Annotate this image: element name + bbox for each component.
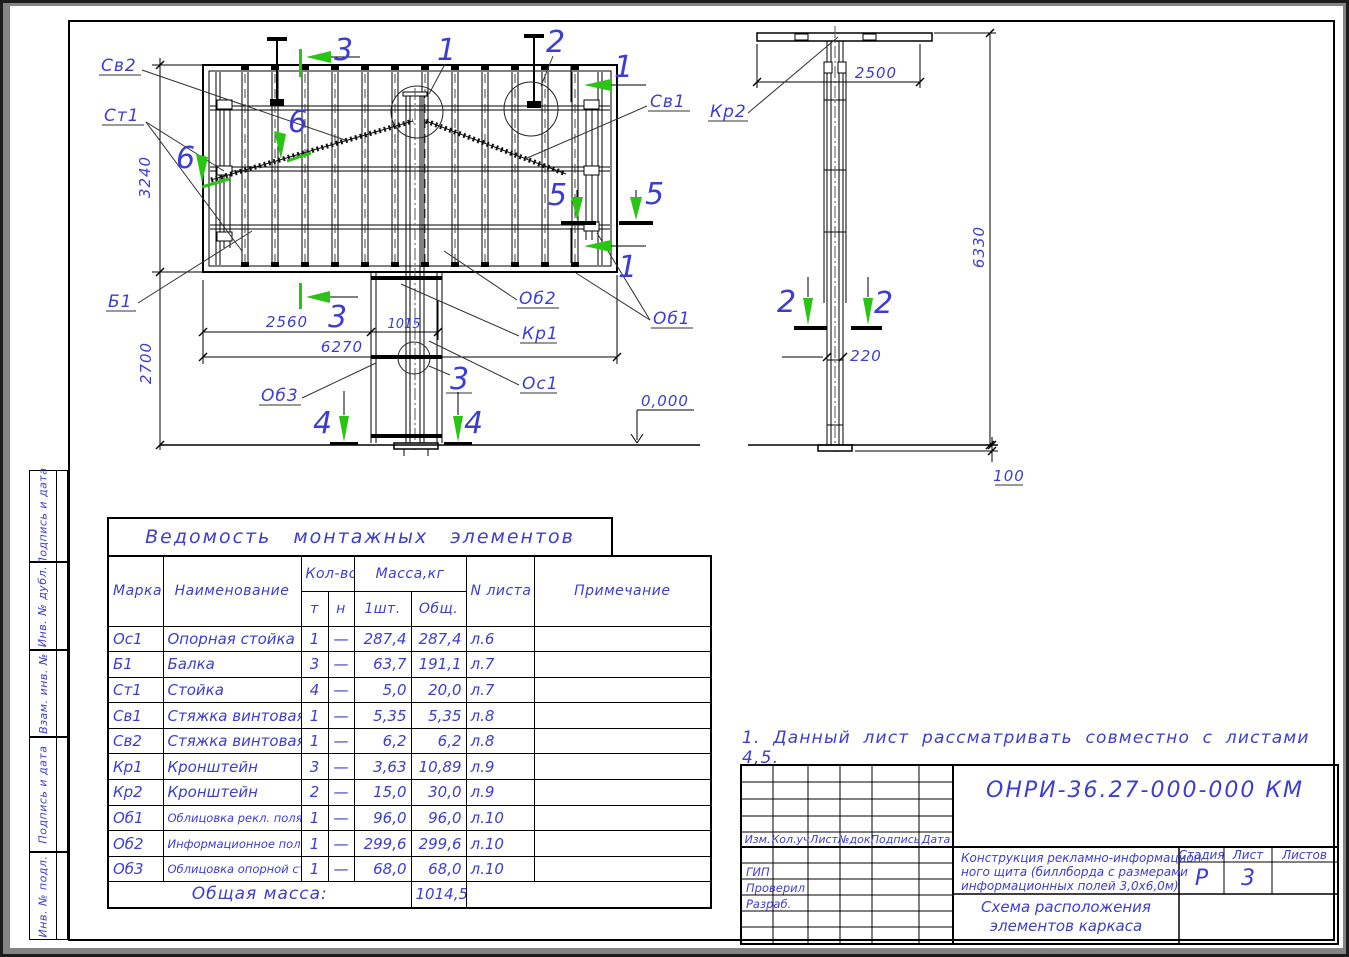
- stamp-cell-vzam-inv: Взам. инв. №: [29, 650, 68, 737]
- title-block: ОНРИ-36.27-000-000 КМ Изм. Кол.уч Лист №…: [740, 764, 1339, 945]
- dim-clearance: 2700: [137, 342, 155, 384]
- leader-lines: [138, 56, 650, 398]
- role-gip: ГИП: [746, 865, 770, 879]
- front-elevation-view: 3240 2700 2560 1015 6270 0,000: [99, 25, 700, 456]
- sheet-note: 1. Данный лист рассматривать совместно с…: [742, 728, 1342, 768]
- cad-screenshot: Подпись и дата Инв. № дубл. Взам. инв. №…: [0, 0, 1349, 957]
- dim-top-width: 2500: [855, 64, 897, 82]
- sheet-number-value: 3: [1224, 862, 1272, 894]
- label-kr2: Кр2: [710, 102, 747, 122]
- table-row: Об2Информационное поле1—299,6299,6л.10: [108, 831, 711, 857]
- dim-base-height: 100: [993, 467, 1025, 485]
- col-header-t: т: [301, 591, 328, 626]
- drawing-sheet: Подпись и дата Инв. № дубл. Взам. инв. №…: [10, 6, 1343, 948]
- label-ob2: Об2: [519, 289, 557, 309]
- document-designation: ОНРИ-36.27-000-000 КМ: [953, 770, 1337, 810]
- stamp-label: Подпись и дата: [37, 745, 50, 843]
- label-kr1: Кр1: [522, 324, 559, 344]
- sheets-label: Листов: [1272, 847, 1337, 862]
- rev-col-izm: Изм.: [742, 832, 773, 847]
- stamp-cell-signature-date-1: Подпись и дата: [29, 470, 68, 562]
- stamp-cell-signature-date-2: Подпись и дата: [29, 737, 68, 852]
- col-header-qty: Кол-во: [301, 556, 354, 591]
- drawing-subtitle-line2: элементов каркаса: [953, 917, 1179, 935]
- table-row: Ос1Опорная стойка1—287,4287,4л.6: [108, 626, 711, 652]
- col-header-note: Примечание: [534, 556, 711, 626]
- section-mark-1: 1: [614, 50, 633, 85]
- table-total-row: Общая масса: 1014,54: [108, 882, 711, 908]
- section-mark-6: 6: [176, 141, 195, 176]
- sheet-label: Лист: [1224, 847, 1272, 862]
- section-mark-4: 4: [313, 406, 332, 441]
- section-mark-3: 3: [334, 33, 353, 68]
- detail-mark-3: 3: [450, 362, 469, 397]
- stamp-label: Инв. № подл.: [37, 855, 50, 937]
- rev-col-list: Лист: [808, 832, 840, 847]
- table-row: Кр2Кронштейн2—15,030,0л.9: [108, 780, 711, 806]
- dim-stand-width: 1015: [387, 317, 420, 332]
- dim-total-height: 6330: [970, 226, 988, 268]
- label-ob1: Об1: [653, 309, 691, 329]
- col-header-n: н: [328, 591, 354, 626]
- col-header-total: Общ.: [411, 591, 466, 626]
- section-mark-4: 4: [464, 406, 483, 441]
- rev-col-data: Дата: [919, 832, 953, 847]
- section-mark-2: 2: [777, 285, 796, 320]
- label-ob3: Об3: [261, 386, 299, 406]
- side-elevation-view: 2500 6330 220 100 Кр2 2: [708, 26, 1025, 485]
- rev-col-podpis: Подпись: [872, 832, 919, 847]
- total-mass-value: 1014,54: [411, 882, 466, 908]
- col-header-one: 1шт.: [354, 591, 411, 626]
- dim-left-span: 2560: [266, 313, 308, 331]
- table-title: Ведомость монтажных элементов: [107, 517, 613, 557]
- assembly-elements-table: Ведомость монтажных элементов Марка Наим…: [107, 517, 712, 909]
- dim-board-height: 3240: [136, 156, 154, 198]
- detail-mark-2: 2: [546, 25, 565, 60]
- col-header-marka: Марка: [108, 556, 163, 626]
- detail-mark-1: 1: [437, 33, 456, 68]
- drawing-subtitle-line1: Схема расположения: [953, 898, 1179, 916]
- level-mark-text: 0,000: [641, 392, 689, 410]
- project-description-line1: Конструкция рекламно-информацион-: [961, 851, 1206, 865]
- table-row: Ст1Стойка4—5,020,0л.7: [108, 677, 711, 703]
- rev-col-ndok: №док.: [840, 832, 872, 847]
- col-header-sheet: N листа: [466, 556, 534, 626]
- stamp-cell-inv-podl: Инв. № подл.: [29, 852, 68, 940]
- table-row: Св2Стяжка винтовая1—6,26,2л.8: [108, 728, 711, 754]
- section-mark-5: 5: [645, 177, 664, 212]
- dim-total-width: 6270: [321, 338, 363, 356]
- stamp-label: Подпись и дата: [37, 467, 50, 565]
- label-b1: Б1: [108, 292, 132, 312]
- label-sv2: Св2: [101, 56, 137, 76]
- label-sv1: Св1: [650, 92, 686, 112]
- section-mark-3: 3: [328, 300, 347, 335]
- section-mark-6: 6: [288, 105, 307, 140]
- label-os1: Ос1: [522, 374, 559, 394]
- stamp-label: Инв. № дубл.: [37, 565, 50, 646]
- drawing-canvas: 3240 2700 2560 1015 6270 0,000: [68, 20, 1336, 520]
- section-mark-2: 2: [874, 286, 893, 321]
- role-razrab: Разраб.: [746, 897, 791, 911]
- project-description-line3: информационных полей 3,0х6,0м): [961, 879, 1179, 893]
- table-row: Об1Облицовка рекл. поля1—96,096,0л.10: [108, 805, 711, 831]
- dim-mast-width: 220: [850, 347, 882, 365]
- section-mark-1: 1: [618, 250, 637, 285]
- stage-label: Стадия: [1179, 847, 1224, 862]
- stamp-label: Взам. инв. №: [37, 653, 50, 734]
- table-row: Об3Облицовка опорной стойки1—68,068,0л.1…: [108, 856, 711, 882]
- table-row: Б1Балка3—63,7191,1л.7: [108, 652, 711, 678]
- table-row: Кр1Кронштейн3—3,6310,89л.9: [108, 754, 711, 780]
- project-description-line2: ного щита (биллборда с размерами: [961, 865, 1188, 879]
- table-row: Св1Стяжка винтовая1—5,355,35л.8: [108, 703, 711, 729]
- sheets-total-value: [1272, 862, 1337, 894]
- role-proveril: Проверил: [746, 881, 805, 895]
- label-st1: Ст1: [104, 106, 140, 126]
- rev-col-koluch: Кол.уч: [773, 832, 808, 847]
- stamp-cell-inv-dupl: Инв. № дубл.: [29, 562, 68, 650]
- col-header-name: Наименование: [163, 556, 301, 626]
- col-header-mass: Масса,кг: [354, 556, 466, 591]
- stage-value: Р: [1179, 862, 1224, 894]
- section-mark-5: 5: [548, 178, 567, 213]
